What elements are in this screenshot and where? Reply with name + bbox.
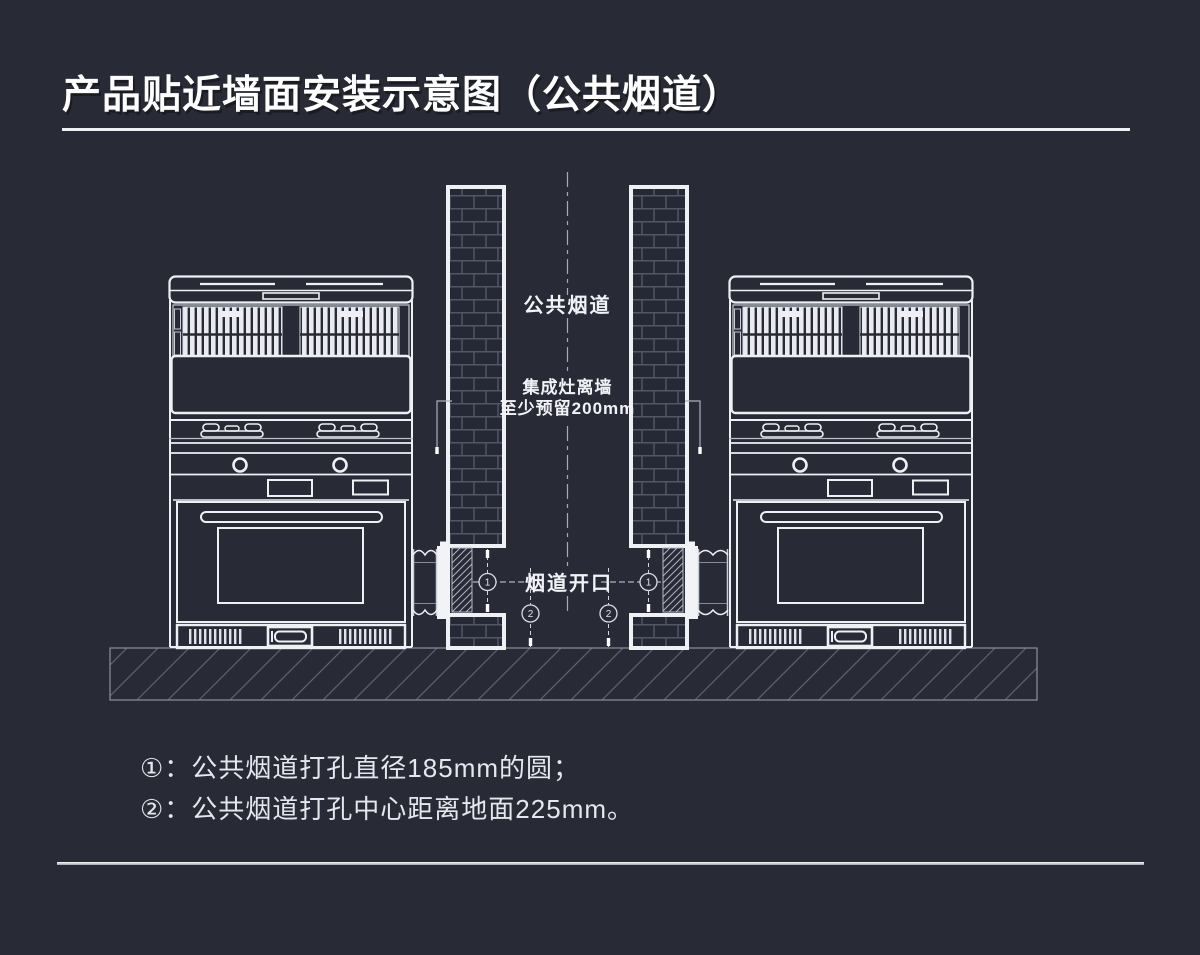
duct-flange-right bbox=[685, 546, 698, 619]
marker-1-left: 1 bbox=[485, 578, 491, 589]
appliance-right bbox=[729, 277, 973, 649]
footnote-2: ②：公共烟道打孔中心距离地面225mm。 bbox=[140, 789, 634, 830]
label-common-flue: 公共烟道 bbox=[524, 293, 612, 317]
label-flue-opening: 烟道开口 bbox=[525, 571, 613, 595]
flue-wall-section-right bbox=[663, 548, 683, 612]
duct-left bbox=[413, 549, 437, 616]
ground-slab bbox=[110, 648, 1037, 700]
appliance-left bbox=[169, 277, 413, 649]
bottom-divider bbox=[57, 862, 1144, 865]
duct-flange-left bbox=[437, 546, 450, 619]
marker-2-left: 2 bbox=[528, 609, 534, 620]
flue-wall-section-left bbox=[452, 548, 472, 612]
duct-right bbox=[698, 549, 728, 616]
marker-2-right: 2 bbox=[606, 609, 612, 620]
marker-1-right: 1 bbox=[646, 578, 652, 589]
footnote-1: ①：公共烟道打孔直径185mm的圆； bbox=[140, 748, 634, 789]
footnotes: ①：公共烟道打孔直径185mm的圆； ②：公共烟道打孔中心距离地面225mm。 bbox=[140, 748, 634, 830]
label-clearance-line2: 至少预留200mm bbox=[500, 398, 636, 418]
label-clearance-line1: 集成灶离墙 bbox=[522, 377, 613, 397]
